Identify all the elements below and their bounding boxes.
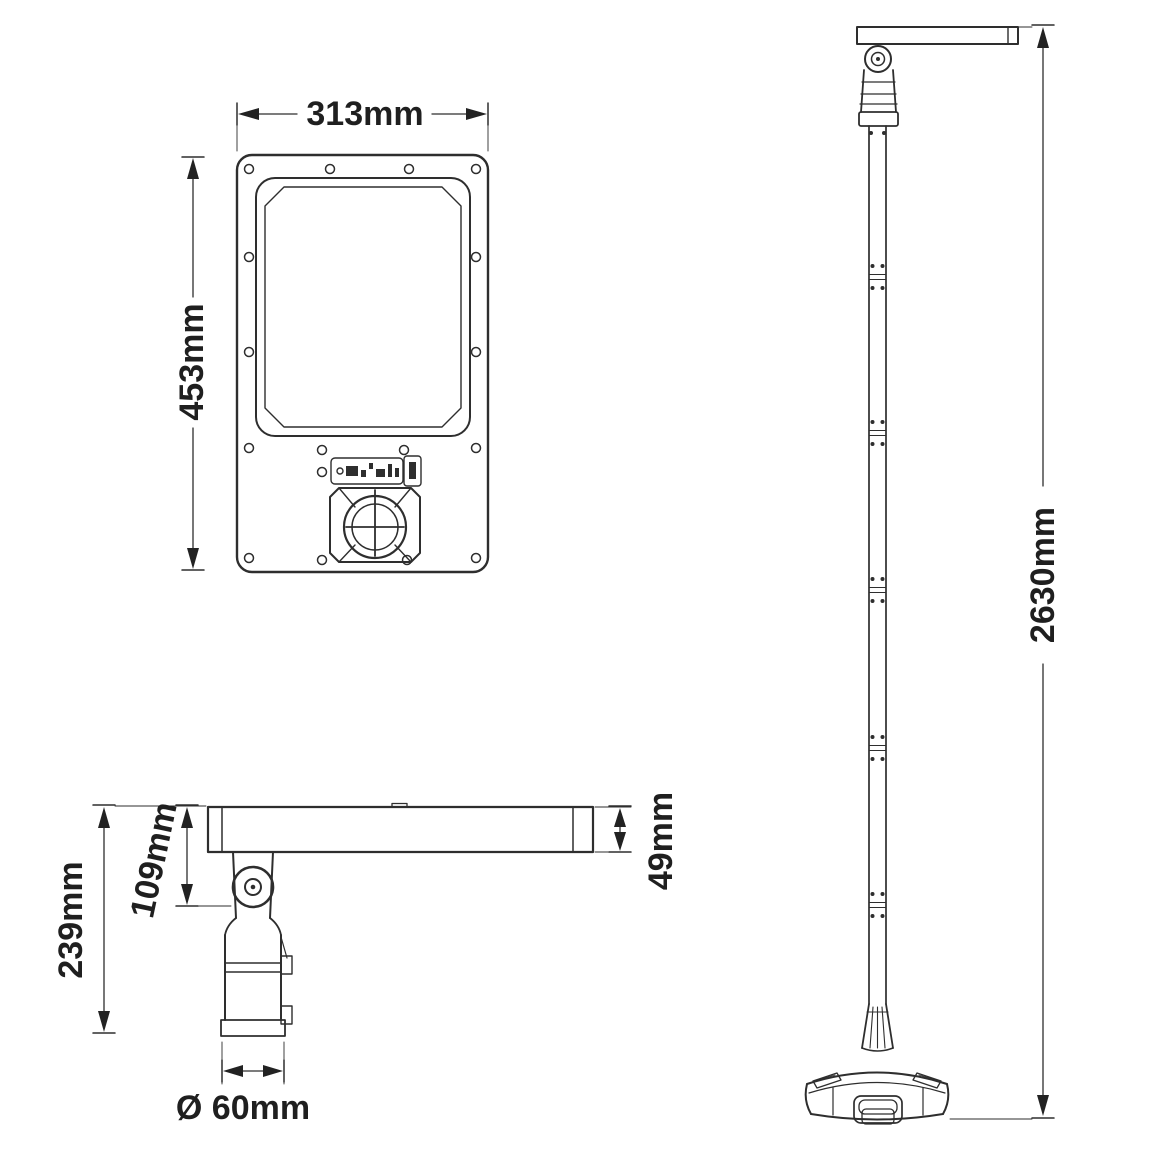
front-width-dimension-label: 313mm: [280, 94, 450, 134]
label-plate: [331, 458, 403, 484]
mounting-clamp: [221, 918, 292, 1036]
technical-drawing-page: 313mm 453mm 239mm 109mm 49mm Ø 60mm 2630…: [0, 0, 1170, 1156]
base-socket: [862, 1004, 893, 1051]
screw-icons: [245, 165, 481, 565]
pole-pivot-joint: [859, 46, 898, 135]
side-mount-diameter-label: Ø 60mm: [158, 1088, 328, 1128]
pole-section-joints: [869, 264, 886, 918]
side-thickness-dimension: [595, 806, 631, 852]
side-head-thickness-label: 49mm: [641, 756, 681, 926]
lamp-body-outline: [237, 155, 488, 572]
pole-view-drawing: [806, 25, 1054, 1124]
pole-tube: [869, 126, 886, 1004]
front-height-dimension-label: 453mm: [172, 277, 212, 447]
pole-lamp-head: [857, 27, 1018, 44]
floodlight-dimension-drawing: [0, 0, 1170, 1156]
cable-gland: [330, 488, 420, 562]
side-overall-height-label: 239mm: [51, 835, 91, 1005]
side-connector-box: [404, 456, 421, 486]
front-view-drawing: [182, 103, 488, 572]
lens-frame: [256, 178, 470, 436]
side-diameter-dimension: [222, 1042, 284, 1084]
pivot-knob: [228, 852, 280, 918]
lamp-head-side: [208, 804, 593, 853]
weighted-base: [806, 1073, 949, 1125]
pole-overall-height-label: 2630mm: [1023, 490, 1063, 660]
